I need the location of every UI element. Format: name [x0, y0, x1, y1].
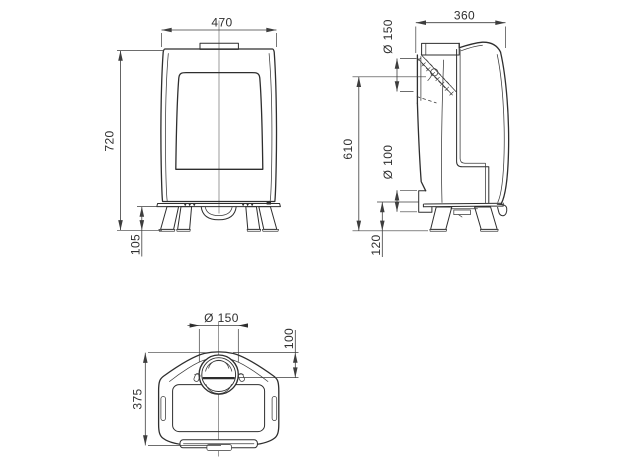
front-width-label: 470 [211, 16, 232, 30]
side-hidden-lower-line [417, 97, 437, 104]
stove-dimension-drawing: 470 720 105 [0, 0, 624, 460]
side-inlet-diameter-label: Ø 100 [381, 145, 395, 180]
dim-side-depth: 360 [416, 9, 506, 54]
top-flue-diameter-label: Ø 150 [204, 311, 239, 325]
side-depth-label: 360 [454, 9, 475, 23]
top-flue-collar [199, 355, 238, 394]
side-front-edge [501, 52, 509, 204]
side-inlet-height-label: 120 [369, 234, 383, 255]
side-door-step-inner [460, 49, 485, 203]
side-view: 360 Ø 150 610 Ø 100 120 [341, 9, 509, 258]
side-flue-height-label: 610 [341, 138, 355, 159]
top-side-slot-right [272, 397, 277, 421]
front-legs [159, 207, 279, 232]
side-air-inlet-stub [419, 191, 432, 213]
side-damper-knob [431, 69, 438, 76]
side-legs [430, 207, 498, 231]
drawing-sheet: 470 720 105 [0, 0, 624, 460]
side-flue-collar [422, 43, 460, 55]
front-base-clips [184, 204, 254, 207]
front-view: 470 720 105 [103, 16, 281, 257]
side-rear-lower-edge [417, 103, 425, 191]
front-ash-bowl-inner [205, 207, 232, 216]
side-front-edge-inner [497, 55, 504, 203]
side-flue-diameter-label: Ø 150 [381, 19, 395, 54]
top-depth-label: 375 [131, 388, 145, 409]
side-rear-slant [417, 55, 456, 103]
front-latch-mark [267, 202, 271, 205]
front-ash-bowl [201, 207, 236, 220]
top-flue-offset-label: 100 [282, 328, 296, 349]
side-top-edge [459, 42, 500, 52]
front-door-glass [176, 73, 263, 170]
side-underbody-box [454, 210, 471, 215]
front-height-label: 720 [103, 130, 117, 151]
dim-side-flue-diameter: Ø 150 [381, 19, 417, 91]
side-body-contour [442, 60, 444, 203]
side-door-step-outer [457, 50, 489, 203]
front-side-seams [166, 54, 272, 201]
dim-side-inlet-height: 120 [369, 202, 419, 257]
dim-front-height: 720 [103, 51, 165, 231]
side-base-plate [423, 203, 503, 207]
front-body-outline [161, 49, 277, 202]
front-leg-clearance-label: 105 [129, 234, 143, 255]
top-side-slot-left [161, 397, 166, 421]
top-view: Ø 150 100 375 [131, 311, 299, 457]
dim-front-leg-clearance: 105 [129, 207, 159, 257]
